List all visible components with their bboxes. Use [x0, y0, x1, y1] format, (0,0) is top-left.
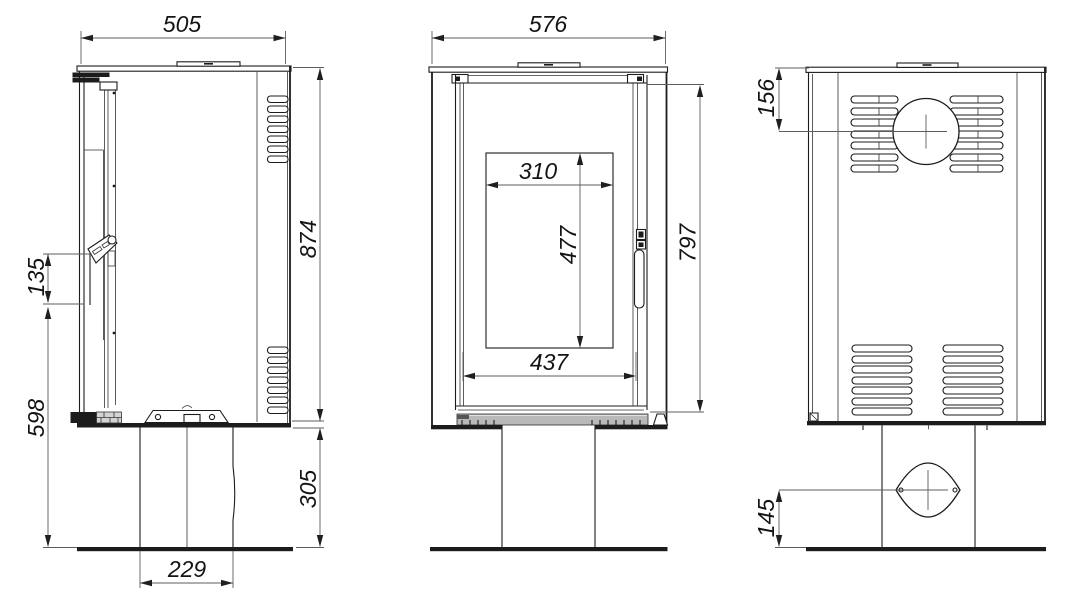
side-rivet-1 [113, 92, 116, 95]
back-top-plate [806, 67, 1046, 72]
dim-label-door-height: 797 [675, 223, 701, 263]
side-handle-bracket [108, 251, 115, 266]
vent-slat [852, 387, 912, 394]
vent-slat [950, 142, 1003, 149]
side-vent-slats-upper [268, 96, 289, 163]
vent-slat [851, 154, 898, 161]
front-door-handle [635, 230, 646, 309]
vent-slat [268, 387, 289, 394]
vent-slat [852, 366, 912, 373]
front-handle-bar [635, 250, 645, 308]
side-pedestal-bolt-left [155, 414, 160, 419]
front-top-plate [429, 67, 668, 72]
dim-label-flue-offset: 156 [753, 79, 779, 118]
vent-slat [950, 165, 1003, 172]
vent-slat [268, 407, 289, 414]
dim-side-pedestal-width: 229 [140, 551, 233, 588]
front-stove-body [429, 63, 668, 551]
side-hinge-plate-upper [73, 73, 110, 78]
front-top-cap-tick [544, 64, 553, 66]
vent-slat [851, 96, 898, 103]
side-view: 505 874 135 598 305 229 [23, 11, 324, 588]
vent-slat [268, 96, 289, 103]
vent-slat [950, 96, 1003, 103]
side-stove-body [73, 62, 292, 423]
back-top-cap-tick [923, 64, 932, 66]
dim-label-side-height: 874 [295, 220, 321, 258]
vent-slat [268, 116, 289, 123]
dim-side-base-height: 305 [293, 428, 324, 548]
front-floor-line [430, 547, 668, 551]
side-top-cap-tick [204, 63, 213, 65]
dim-side-handle-height: 598 [23, 307, 77, 548]
side-floor-line [77, 547, 293, 551]
dim-label-inlet-height: 145 [753, 499, 779, 538]
side-pedestal-mark [182, 406, 192, 409]
vent-slat [268, 377, 289, 384]
dim-label-pedestal-width: 229 [167, 556, 207, 582]
vent-slat [851, 165, 898, 172]
dim-label-glass-height: 477 [555, 225, 581, 265]
front-view: 576 310 477 437 797 [429, 11, 704, 551]
side-hinge-plate-lower [73, 78, 100, 83]
vent-slat [943, 356, 1003, 363]
dim-label-handle-length: 135 [23, 258, 49, 297]
dim-label-glass-width: 310 [519, 158, 558, 184]
vent-slat [852, 408, 912, 415]
front-body-bottom-left [431, 425, 502, 429]
front-hinge-right-tick [637, 77, 642, 82]
side-pedestal-bolt-right [209, 414, 214, 419]
vent-slat [268, 106, 289, 113]
dim-label-door-width: 437 [530, 349, 570, 375]
dim-side-body-height: 874 [292, 68, 324, 422]
side-rivet-2 [113, 185, 116, 188]
vent-slat [852, 377, 912, 384]
vent-slat [268, 397, 289, 404]
vent-slat [268, 146, 289, 153]
dim-front-door-width: 437 [463, 349, 636, 381]
technical-drawing-canvas: 505 874 135 598 305 229 [0, 0, 1081, 602]
side-body-front-edge [80, 71, 85, 423]
dim-side-handle-length: 135 [23, 254, 91, 304]
back-vent-slats-lower [852, 345, 1003, 415]
dim-label-front-width: 576 [529, 11, 568, 37]
front-handle-bracket-lower-fill [639, 243, 644, 248]
vent-slat [950, 154, 1003, 161]
back-floor-line [806, 547, 1046, 551]
vent-slat [851, 142, 898, 149]
dim-front-glass-width: 310 [486, 158, 613, 188]
side-top-plate [77, 66, 291, 71]
back-vent-slats-upper [851, 96, 1003, 172]
front-ash-lip-latch [457, 415, 469, 419]
vent-slat [943, 398, 1003, 405]
vent-slat [851, 131, 898, 138]
vent-slat [943, 345, 1003, 352]
vent-slat [852, 356, 912, 363]
dim-label-handle-height: 598 [23, 399, 49, 438]
side-body-bottom [77, 423, 291, 428]
front-handle-bracket-upper-fill [639, 232, 644, 238]
front-body-bottom-right [595, 425, 668, 429]
vent-slat [268, 357, 289, 364]
vent-slat [943, 387, 1003, 394]
dim-side-overall-width: 505 [81, 11, 286, 64]
vent-slat [943, 377, 1003, 384]
front-corner-wedge [654, 414, 668, 425]
vent-slat [268, 347, 289, 354]
vent-slat [943, 366, 1003, 373]
back-view: 156 145 [753, 63, 1046, 551]
side-pedestal-legs [140, 428, 233, 548]
vent-slat [943, 408, 1003, 415]
dim-front-glass-height: 477 [555, 153, 583, 348]
side-pedestal-bulge [233, 466, 235, 520]
side-rivet-3 [113, 332, 116, 335]
side-base-bracket [71, 412, 97, 423]
stove-dimension-drawing: 505 874 135 598 305 229 [0, 0, 1081, 602]
vent-slat [268, 126, 289, 133]
vent-slat [950, 108, 1003, 115]
front-base-strip [457, 414, 668, 425]
vent-slat [268, 367, 289, 374]
dim-front-overall-width: 576 [432, 11, 666, 64]
vent-slat [268, 136, 289, 143]
front-pedestal-legs [502, 425, 595, 547]
vent-slat [851, 108, 898, 115]
side-door-handle [88, 235, 117, 266]
side-vent-slats-lower [268, 347, 289, 414]
side-hinge-box [100, 82, 117, 90]
dim-label-side-width: 505 [163, 11, 202, 37]
side-pedestal-notch [184, 415, 200, 423]
side-handle-knob [108, 236, 116, 244]
side-pedestal-base [71, 406, 294, 552]
vent-slat [268, 156, 289, 163]
vent-slat [852, 345, 912, 352]
vent-slat [852, 398, 912, 405]
dim-label-base-height: 305 [295, 470, 321, 509]
dim-front-door-height: 797 [647, 85, 704, 413]
vent-slat [851, 119, 898, 126]
back-body-bottom [807, 421, 1046, 425]
